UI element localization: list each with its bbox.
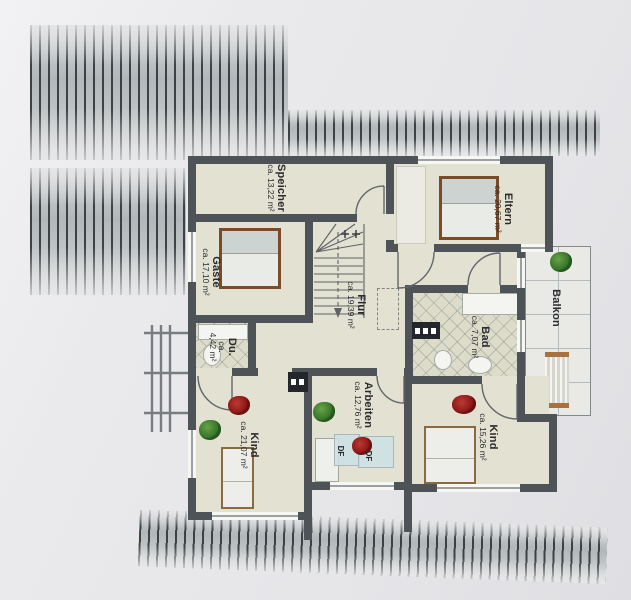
room-name: Kind	[487, 424, 499, 449]
room-name: Eltern	[502, 193, 514, 225]
room-label-bad: Bad ca. 7,07 m²	[465, 305, 495, 369]
room-area: ca. 21,07 m²	[238, 421, 247, 468]
room-label-speicher: Speicher ca. 13,22 m²	[259, 153, 293, 223]
room-label-gaeste: Gäste ca. 17,10 m²	[194, 237, 228, 307]
room-name: Flur	[355, 294, 367, 316]
room-name: Gäste	[210, 256, 222, 288]
room-name: Kind	[248, 432, 260, 457]
room-area: ca. 12,76 m²	[352, 381, 361, 428]
skylight-label-right: DF	[363, 446, 375, 466]
room-label-arbeiten: Arbeiten ca. 12,76 m²	[346, 368, 380, 442]
room-name: Speicher	[275, 164, 287, 212]
room-name: Arbeiten	[362, 382, 374, 428]
plan-linework	[0, 0, 631, 600]
room-area: ca. 19,39 m²	[345, 281, 354, 328]
room-label-kind-rechts: Kind ca. 15,26 m²	[471, 401, 505, 473]
ladder	[144, 325, 188, 432]
room-area: ca. 7,07 m²	[469, 316, 478, 359]
room-label-kind-links: Kind ca. 21,07 m²	[232, 409, 266, 481]
room-label-dusche: Du. ca. 4,42 m²	[202, 326, 244, 368]
room-label-balkon: Balkon	[544, 273, 568, 343]
room-area: ca. 13,22 m²	[265, 164, 274, 211]
room-label-flur: Flur ca. 19,39 m²	[339, 270, 373, 340]
room-area: ca. 15,26 m²	[477, 413, 486, 460]
room-label-eltern: Eltern ca. 20,67 m²	[486, 174, 520, 244]
room-area: ca. 17,10 m²	[200, 248, 209, 295]
room-area: ca. 4,42 m²	[208, 332, 227, 362]
room-name: Balkon	[550, 289, 562, 327]
floor-plan-photo: Speicher ca. 13,22 m² Gäste ca. 17,10 m²…	[0, 0, 631, 600]
room-area: ca. 20,67 m²	[492, 185, 501, 232]
room-name: Bad	[479, 326, 491, 347]
room-name: Du.	[226, 338, 238, 356]
skylight-label-left: DF	[335, 441, 347, 461]
